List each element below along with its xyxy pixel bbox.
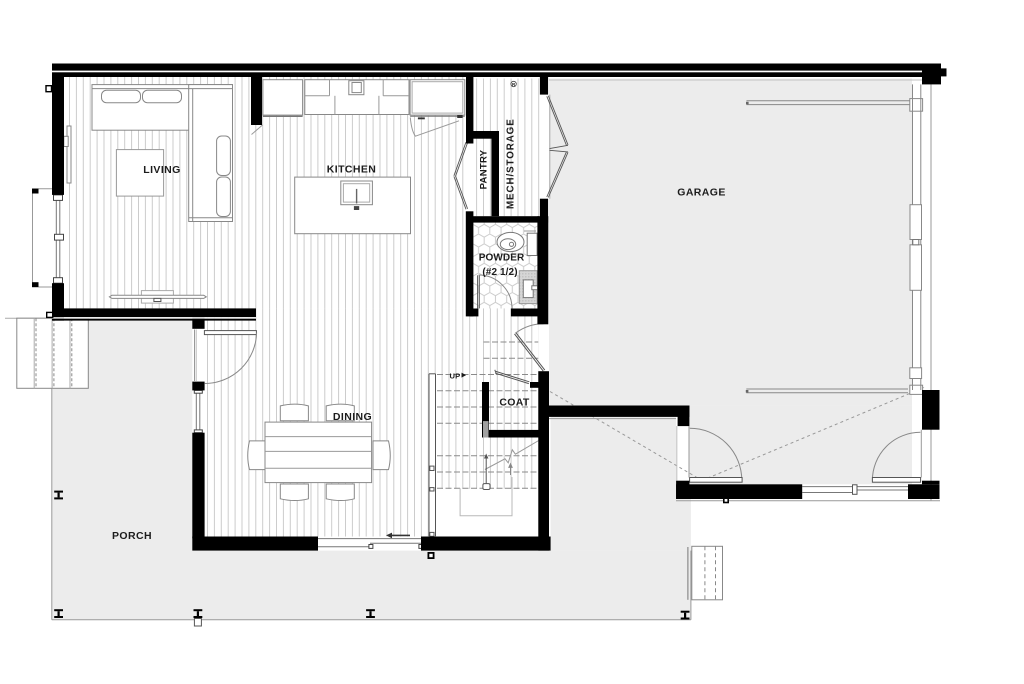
svg-text:LIVING: LIVING bbox=[143, 164, 180, 176]
svg-text:UP: UP bbox=[450, 372, 461, 381]
svg-text:COAT: COAT bbox=[499, 397, 529, 409]
svg-text:POWDER: POWDER bbox=[479, 252, 525, 263]
svg-text:PORCH: PORCH bbox=[112, 530, 152, 542]
svg-text:PANTRY: PANTRY bbox=[479, 149, 490, 189]
svg-text:GARAGE: GARAGE bbox=[677, 186, 726, 198]
svg-text:(#2 1/2): (#2 1/2) bbox=[482, 267, 517, 278]
svg-text:DINING: DINING bbox=[333, 411, 372, 423]
svg-text:KITCHEN: KITCHEN bbox=[327, 164, 376, 176]
svg-text:MECH/STORAGE: MECH/STORAGE bbox=[506, 118, 517, 209]
